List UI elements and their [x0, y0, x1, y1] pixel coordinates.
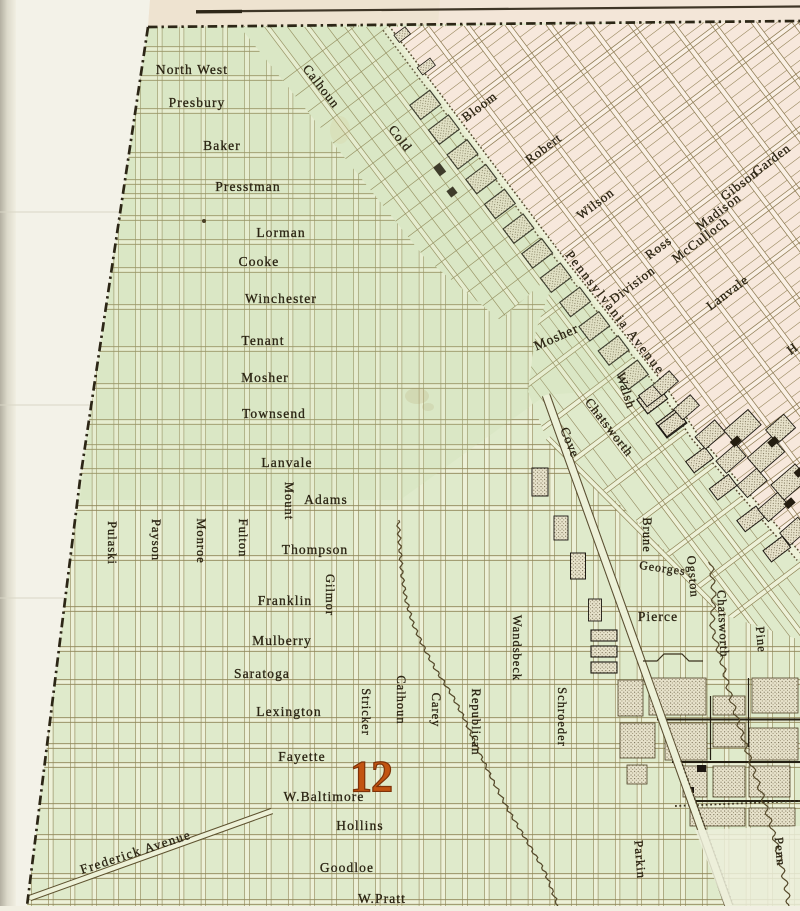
svg-text:Lorman: Lorman	[256, 225, 305, 240]
svg-text:Brune: Brune	[640, 517, 654, 553]
svg-text:Lexington: Lexington	[256, 704, 321, 719]
svg-text:Thompson: Thompson	[282, 542, 349, 557]
svg-text:Mount: Mount	[282, 482, 296, 520]
svg-text:Cooke: Cooke	[239, 254, 280, 269]
svg-text:Wandsbeck: Wandsbeck	[510, 615, 524, 681]
svg-text:Goodloe: Goodloe	[320, 860, 374, 875]
svg-text:Fayette: Fayette	[278, 749, 325, 764]
svg-text:Stricker: Stricker	[359, 688, 373, 736]
svg-text:Presstman: Presstman	[215, 179, 280, 194]
svg-text:Calhoun: Calhoun	[394, 675, 408, 724]
svg-text:Lanvale: Lanvale	[261, 455, 312, 470]
svg-text:Monroe: Monroe	[194, 518, 208, 564]
svg-text:Payson: Payson	[149, 519, 163, 561]
svg-text:Baker: Baker	[203, 138, 241, 153]
svg-text:Tenant: Tenant	[241, 333, 284, 348]
svg-text:Fulton: Fulton	[236, 519, 250, 558]
svg-text:Mulberry: Mulberry	[252, 633, 312, 648]
svg-text:Mosher: Mosher	[241, 370, 289, 385]
svg-text:12: 12	[350, 752, 392, 801]
svg-text:North West: North West	[156, 62, 228, 77]
svg-text:Carey: Carey	[429, 693, 443, 728]
svg-text:Pierce: Pierce	[638, 609, 678, 624]
svg-text:Schroeder: Schroeder	[555, 687, 569, 747]
svg-text:Presbury: Presbury	[169, 95, 226, 110]
svg-text:Gilmor: Gilmor	[323, 574, 337, 616]
svg-text:Republican: Republican	[469, 689, 483, 756]
svg-text:W.Pratt: W.Pratt	[358, 891, 406, 906]
svg-text:Pulaski: Pulaski	[105, 521, 119, 565]
svg-text:Saratoga: Saratoga	[234, 666, 290, 681]
svg-text:Penn: Penn	[772, 837, 788, 867]
svg-text:Adams: Adams	[304, 492, 348, 507]
svg-text:Hollins: Hollins	[336, 818, 383, 833]
svg-text:Franklin: Franklin	[258, 593, 313, 608]
svg-text:Townsend: Townsend	[242, 406, 306, 421]
svg-text:Pine: Pine	[753, 626, 769, 653]
svg-text:Winchester: Winchester	[245, 291, 317, 306]
